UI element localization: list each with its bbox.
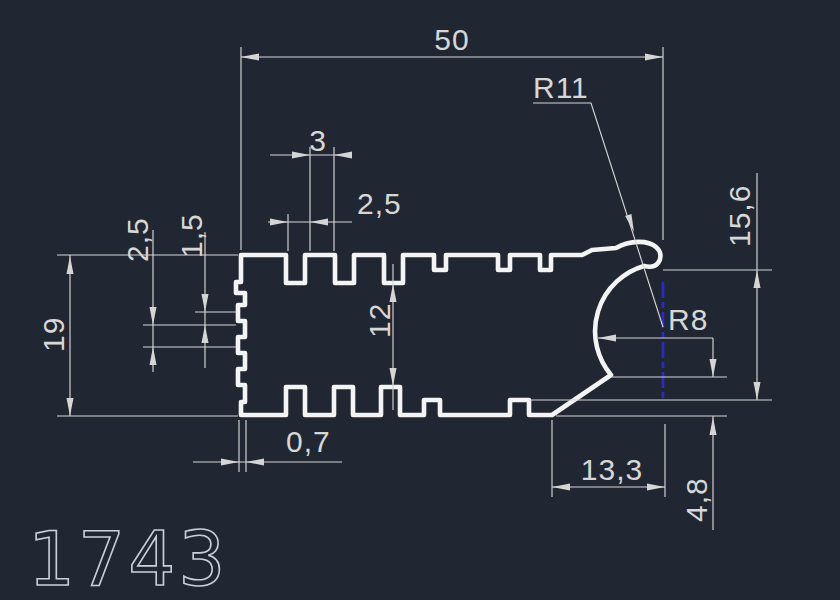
dim-top-corner-radius-label: R11 [533, 71, 589, 104]
arrowhead [150, 307, 157, 325]
part-number: 1743 [28, 516, 228, 600]
arrowhead [202, 325, 209, 343]
dim-overall-height: 19 [37, 255, 238, 416]
arrowhead [221, 459, 239, 466]
arrowhead [647, 484, 665, 491]
dim-top-slot-pitch-label: 2,5 [357, 187, 402, 220]
arrowhead [625, 214, 634, 232]
dim-left-tooth-depth: 0,7 [193, 420, 342, 472]
dim-left-tooth-gap: 1,5 [175, 213, 236, 368]
dim-bottom-right-offset: 13,3 [552, 420, 665, 497]
profile-outline [236, 242, 660, 415]
dim-bulb-bottom-drop-label: 4,8 [680, 477, 713, 522]
arrowhead [270, 219, 288, 226]
arrowhead [246, 459, 264, 466]
arrowhead [292, 152, 310, 159]
arrowhead [202, 294, 209, 312]
arrowhead [150, 347, 157, 365]
dim-bottom-right-offset-label: 13,3 [581, 453, 643, 486]
arrowhead [241, 54, 259, 61]
dim-right-side-height-label: 15,6 [723, 185, 756, 247]
dim-left-tooth-depth-label: 0,7 [286, 425, 331, 458]
arrowhead [390, 284, 397, 302]
arrowhead [754, 270, 761, 288]
arrowhead [598, 335, 616, 342]
arrowhead [390, 368, 397, 386]
dim-bulb-bottom-drop: 4,8 [556, 338, 727, 530]
dim-top-slot-pitch: 2,5 [268, 187, 402, 251]
dim-top-slot-width: 3 [270, 124, 352, 251]
arrowhead [552, 484, 570, 491]
dim-overall-width-label: 50 [434, 23, 469, 56]
dim-top-slot-width-label: 3 [309, 124, 327, 157]
arrowhead [67, 256, 74, 274]
arrowhead [645, 54, 663, 61]
dim-inner-height-label: 12 [363, 303, 396, 338]
cad-drawing-canvas[interactable]: 50 R11 3 2,5 2,5 1,5 19 [0, 0, 840, 600]
dim-top-corner-radius: R11 [533, 71, 663, 327]
arrowhead [67, 398, 74, 416]
dim-left-tooth-gap-label: 1,5 [175, 213, 208, 258]
dim-bulb-radius: R8 [598, 303, 713, 342]
arrowhead [310, 219, 328, 226]
dim-bulb-radius-label: R8 [668, 303, 708, 336]
dim-overall-height-label: 19 [37, 317, 70, 352]
arrowhead [710, 417, 717, 435]
arrowhead [334, 152, 352, 159]
dim-overall-width: 50 [241, 23, 663, 250]
arrowhead [754, 382, 761, 400]
arrowhead [710, 359, 717, 377]
